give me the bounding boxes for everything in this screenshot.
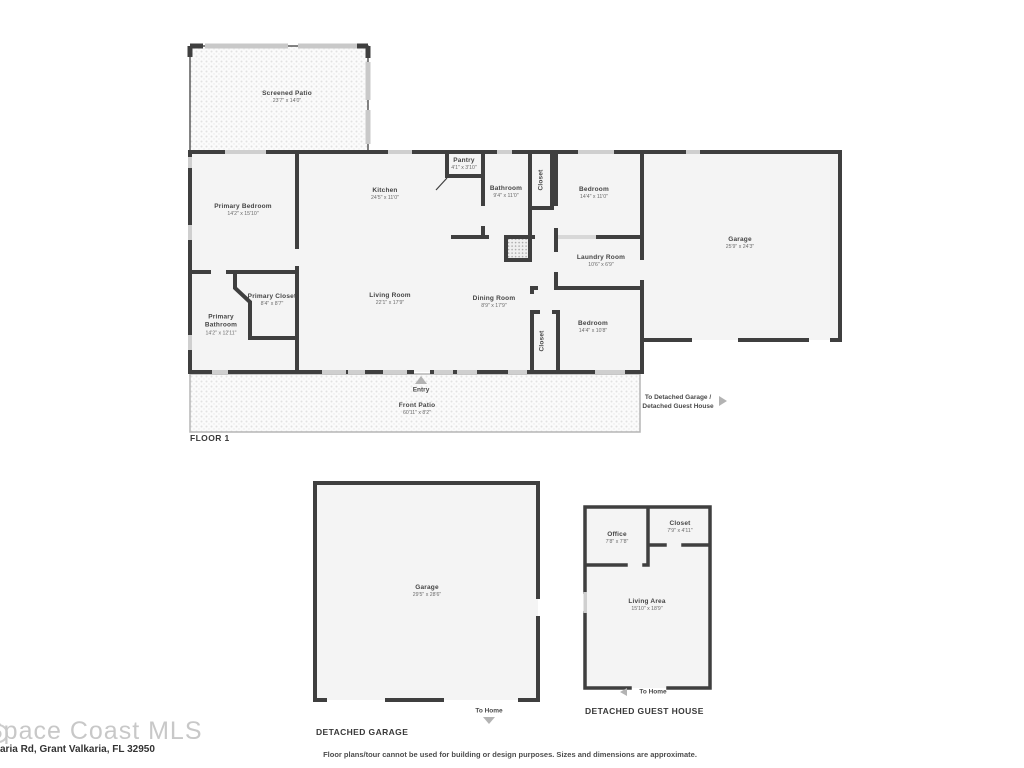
to-home-label-guest-house: To Home [639,687,666,696]
room-label-screened-patio: Screened Patio 23'7" x 14'0" [262,90,312,104]
to-detached-label: To Detached Garage / Detached Guest Hous… [642,393,713,411]
room-label-bedroom-top: Bedroom 14'4" x 11'0" [579,186,609,200]
room-label-bathroom: Bathroom 9'4" x 11'0" [490,185,522,199]
detached-garage-plan [315,483,538,724]
room-label-garage: Garage 25'9" x 24'3" [726,236,754,250]
to-home-arrow-down-icon [483,717,495,724]
room-label-primary-bedroom: Primary Bedroom 14'2" x 15'10" [214,203,272,217]
guest-house-window [584,592,588,613]
guest-house-title: DETACHED GUEST HOUSE [585,706,704,716]
floorplan-drawing [0,0,1024,768]
room-label-office: Office 7'8" x 7'8" [606,531,629,545]
to-home-label-garage: To Home [475,706,502,715]
disclaimer-text: Floor plans/tour cannot be used for buil… [323,750,697,759]
room-label-front-patio: Front Patio 60'11" x 8'2" [399,402,436,416]
entry-label: Entry [413,385,430,394]
room-label-bedroom-bottom: Bedroom 14'4" x 10'8" [578,320,608,334]
room-label-pantry: Pantry 4'1" x 3'10" [451,157,477,171]
room-label-living-room: Living Room 22'1" x 17'9" [369,292,411,306]
room-label-closet-bottom: Closet [539,330,546,351]
floor1-title: FLOOR 1 [190,433,230,443]
room-label-primary-closet: Primary Closet 8'4" x 8'7" [248,293,297,307]
detached-garage-title: DETACHED GARAGE [316,727,408,737]
room-label-kitchen: Kitchen 24'5" x 11'0" [371,187,399,201]
to-detached-arrow-right-icon [719,396,727,406]
room-label-closet-guest-house: Closet 7'9" x 4'11" [667,520,692,534]
watermark-logo: Space Coast MLS [0,717,203,746]
room-label-living-area: Living Area 15'10" x 18'9" [628,598,665,612]
room-label-laundry-room: Laundry Room 10'6" x 6'9" [577,254,625,268]
room-label-closet-top: Closet [538,169,545,190]
room-label-primary-bathroom: Primary Bathroom 14'2" x 12'11" [197,313,245,336]
property-address: aria Rd, Grant Valkaria, FL 32950 [0,744,155,755]
floorplan-page: Screened Patio 23'7" x 14'0" Primary Bed… [0,0,1024,768]
room-label-detached-garage: Garage 29'5" x 28'6" [413,584,441,598]
room-label-dining-room: Dining Room 8'9" x 17'9" [473,295,516,309]
utility-closet-area [506,237,530,260]
